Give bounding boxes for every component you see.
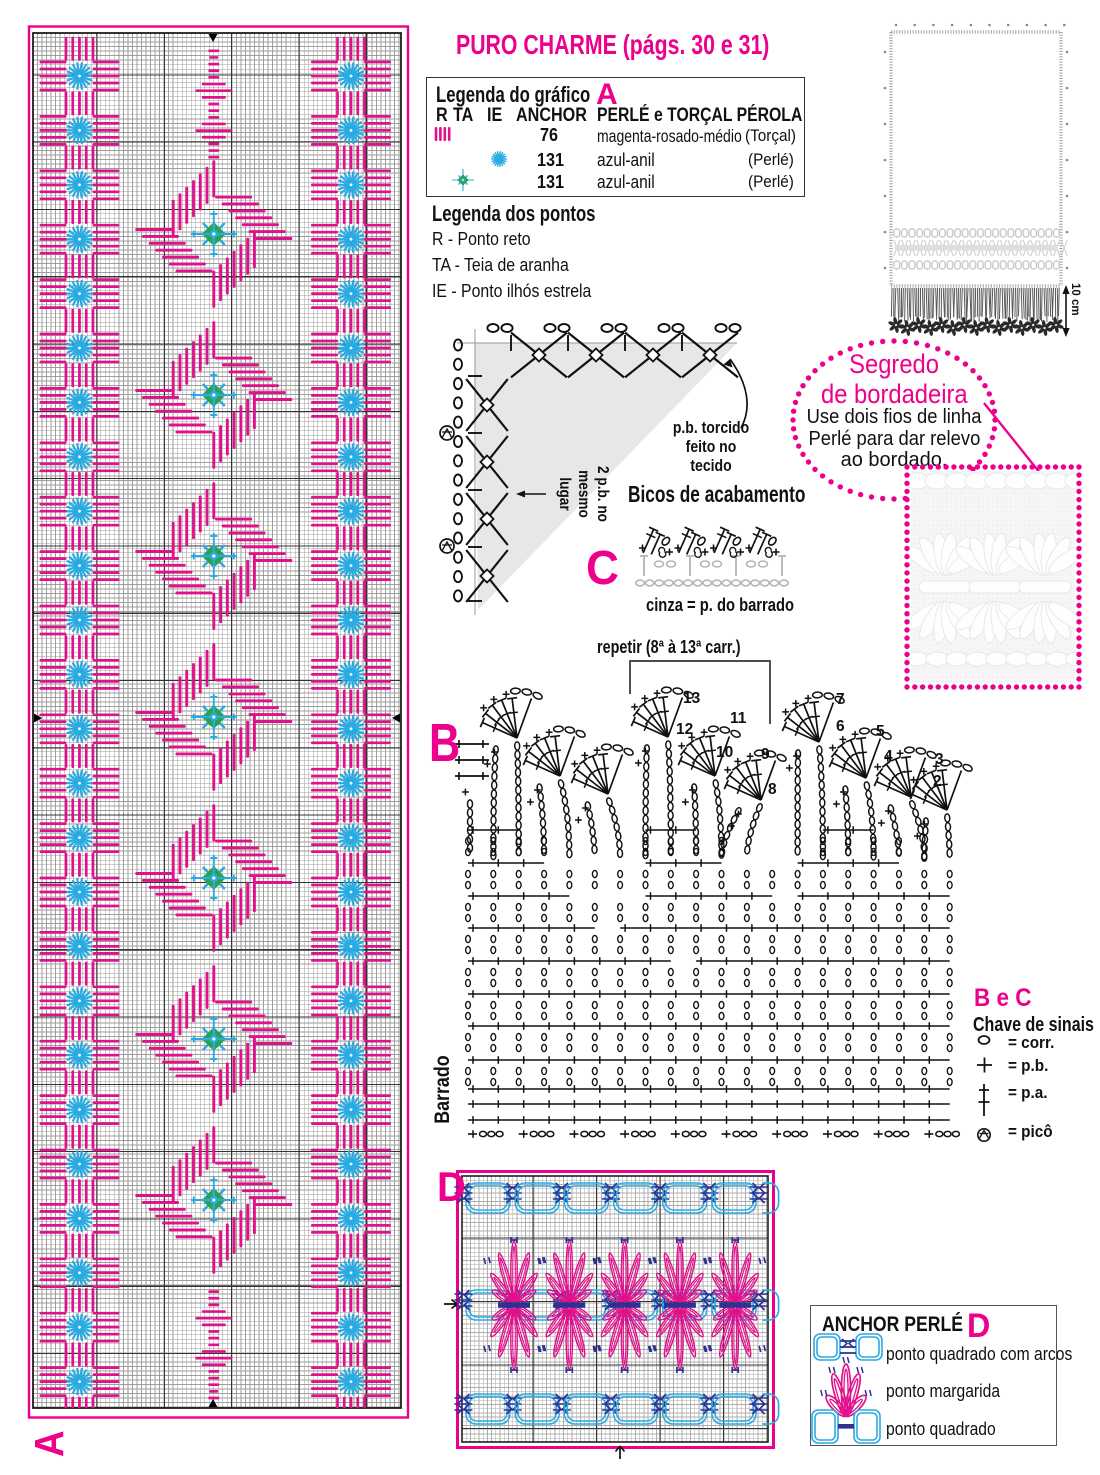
svg-text:6: 6: [836, 718, 845, 735]
svg-text:2: 2: [933, 773, 942, 790]
svg-text:3: 3: [935, 751, 944, 768]
svg-text:10: 10: [716, 744, 733, 761]
svg-text:5: 5: [876, 723, 885, 740]
svg-text:4: 4: [884, 748, 893, 765]
svg-text:9: 9: [761, 746, 770, 763]
svg-text:7: 7: [836, 691, 845, 708]
svg-text:8: 8: [768, 781, 777, 798]
